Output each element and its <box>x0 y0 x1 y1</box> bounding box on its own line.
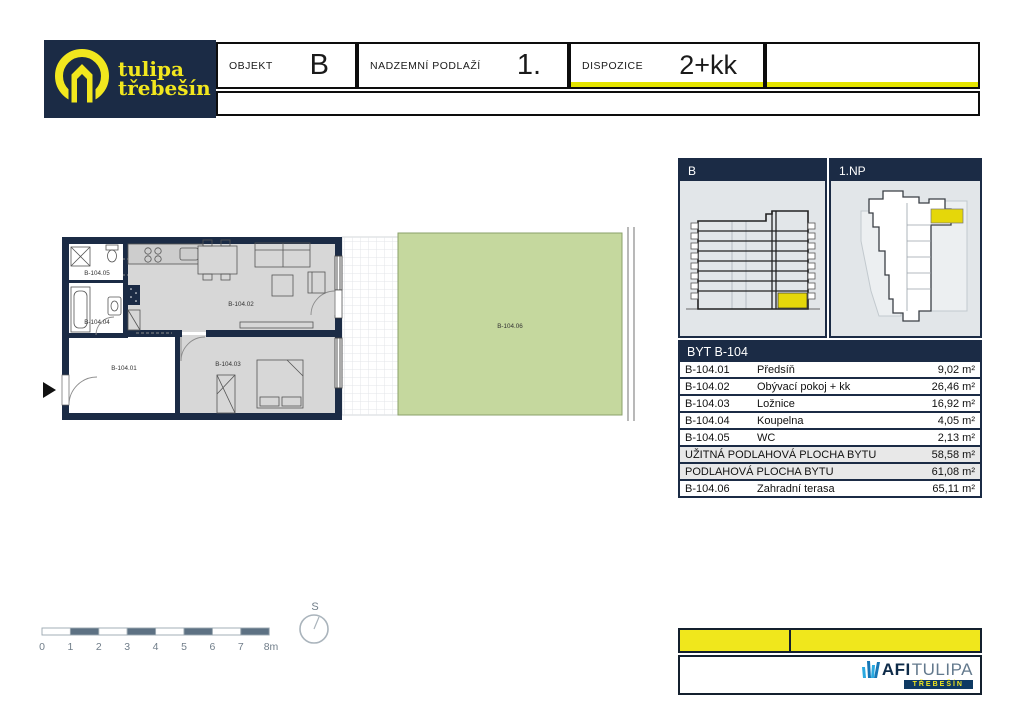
dispozice-label: DISPOZICE <box>571 60 643 72</box>
field-objekt: OBJEKT B <box>216 42 357 89</box>
room-label-hall: B-104.01 <box>111 365 137 372</box>
scale-tick: 3 <box>124 641 130 653</box>
brand-logo-box: tulipa třebešín <box>44 40 216 118</box>
row-code: B-104.05 <box>685 432 757 444</box>
floor-location-panel: 1.NP <box>829 158 982 338</box>
trebesin-chip: TŘEBEŠÍN <box>904 680 973 689</box>
row-area: 2,13 m² <box>895 432 975 444</box>
row-code: B-104.04 <box>685 415 757 427</box>
field-empty <box>765 42 980 89</box>
highlighted-unit-floor <box>931 209 963 223</box>
titleblock-logo-row: AFI TULIPA TŘEBEŠÍN <box>678 655 982 695</box>
afi-tulipa-logo: AFI TULIPA TŘEBEŠÍN <box>862 661 973 689</box>
row-name: Ložnice <box>757 398 895 410</box>
scale-tick: 2 <box>96 641 102 653</box>
titleblock-cell-right <box>791 630 980 651</box>
kitchen-counter <box>128 244 203 264</box>
scale-tick: 6 <box>209 641 215 653</box>
room-label-bath: B-104.04 <box>84 319 110 326</box>
podlazi-value: 1. <box>517 49 567 82</box>
window-bedroom <box>335 338 342 388</box>
afi-text: AFI <box>882 661 911 678</box>
floor-title: 1.NP <box>831 160 980 181</box>
row-area: 65,11 m² <box>895 483 975 495</box>
field-dispozice: DISPOZICE 2+kk <box>569 42 765 89</box>
unit-area-table: BYT B-104 B-104.01 Předsíň 9,02 m² B-104… <box>678 340 982 498</box>
row-name: Předsíň <box>757 364 895 376</box>
scale-tick: 7 <box>238 641 244 653</box>
scale-tick-labels: 0 1 2 3 4 5 6 7 8m <box>39 641 278 653</box>
header-strip <box>216 91 980 116</box>
row-name: Obývací pokoj + kk <box>757 381 895 393</box>
floorplan-sheet: tulipa třebešín OBJEKT B NADZEMNÍ PODLAŽ… <box>0 0 1024 724</box>
row-name: WC <box>757 432 895 444</box>
apartment-floorplan: B-104.05 B-104.04 B-104.01 B-104.02 B-10… <box>40 225 650 430</box>
table-terrace-row: B-104.06 Zahradní terasa 65,11 m² <box>680 479 980 496</box>
north-label: S <box>311 601 318 613</box>
terrace-paving-grid <box>342 237 398 415</box>
table-row: B-104.04 Koupelna 4,05 m² <box>680 411 980 428</box>
brand-line2: třebešín <box>118 79 211 98</box>
empty-underline <box>767 82 978 87</box>
titleblock-yellow-row <box>678 628 982 653</box>
row-code: B-104.06 <box>685 483 757 495</box>
table-row: B-104.05 WC 2,13 m² <box>680 428 980 445</box>
terrace-door-gap <box>335 290 342 318</box>
row-area: 4,05 m² <box>895 415 975 427</box>
room-label-bedroom: B-104.03 <box>215 361 241 368</box>
dispozice-underline <box>571 82 763 87</box>
row-name: Zahradní terasa <box>757 483 895 495</box>
highlighted-unit-elevation <box>778 293 807 308</box>
row-area: 9,02 m² <box>895 364 975 376</box>
afi-w-icon <box>862 661 881 678</box>
north-indicator: S <box>300 601 328 643</box>
elevation-title: B <box>680 160 825 181</box>
table-summary-row: UŽITNÁ PODLAHOVÁ PLOCHA BYTU 58,58 m² <box>680 445 980 462</box>
building-elevation-diagram <box>680 181 825 336</box>
table-title: BYT B-104 <box>680 342 980 362</box>
table-summary-row: PODLAHOVÁ PLOCHA BYTU 61,08 m² <box>680 462 980 479</box>
room-label-terrace: B-104.06 <box>497 323 523 330</box>
row-code: B-104.02 <box>685 381 757 393</box>
tulipa-text: TULIPA <box>912 661 973 678</box>
dining-table-icon <box>198 240 237 280</box>
objekt-value: B <box>310 49 355 82</box>
table-row: B-104.03 Ložnice 16,92 m² <box>680 394 980 411</box>
summary-name: UŽITNÁ PODLAHOVÁ PLOCHA BYTU <box>685 449 895 461</box>
field-podlazi: NADZEMNÍ PODLAŽÍ 1. <box>357 42 569 89</box>
summary-area: 58,58 m² <box>895 449 975 461</box>
building-elevation-panel: B <box>678 158 827 338</box>
room-label-wc: B-104.05 <box>84 270 110 277</box>
scale-tick: 4 <box>153 641 159 653</box>
dispozice-value: 2+kk <box>679 50 763 81</box>
row-code: B-104.03 <box>685 398 757 410</box>
objekt-label: OBJEKT <box>218 60 273 72</box>
titleblock-cell-left <box>680 630 791 651</box>
summary-name: PODLAHOVÁ PLOCHA BYTU <box>685 466 895 478</box>
scale-tick: 5 <box>181 641 187 653</box>
window-living <box>335 256 342 290</box>
floor-location-diagram <box>831 181 980 336</box>
row-name: Koupelna <box>757 415 895 427</box>
room-bedroom <box>180 335 335 413</box>
table-row: B-104.02 Obývací pokoj + kk 26,46 m² <box>680 377 980 394</box>
scale-tick: 0 <box>39 641 45 653</box>
scale-bar: 0 1 2 3 4 5 6 7 8m S <box>38 598 338 660</box>
tulipa-logo-icon <box>54 48 110 110</box>
brand-name: tulipa třebešín <box>118 60 211 98</box>
entry-door-gap <box>62 375 69 405</box>
row-area: 26,46 m² <box>895 381 975 393</box>
row-area: 16,92 m² <box>895 398 975 410</box>
table-row: B-104.01 Předsíň 9,02 m² <box>680 362 980 377</box>
row-code: B-104.01 <box>685 364 757 376</box>
room-label-living: B-104.02 <box>228 301 254 308</box>
podlazi-label: NADZEMNÍ PODLAŽÍ <box>359 60 481 72</box>
scale-tick: 8m <box>264 641 279 653</box>
summary-area: 61,08 m² <box>895 466 975 478</box>
scale-tick: 1 <box>67 641 73 653</box>
entry-arrow-icon <box>43 382 56 398</box>
